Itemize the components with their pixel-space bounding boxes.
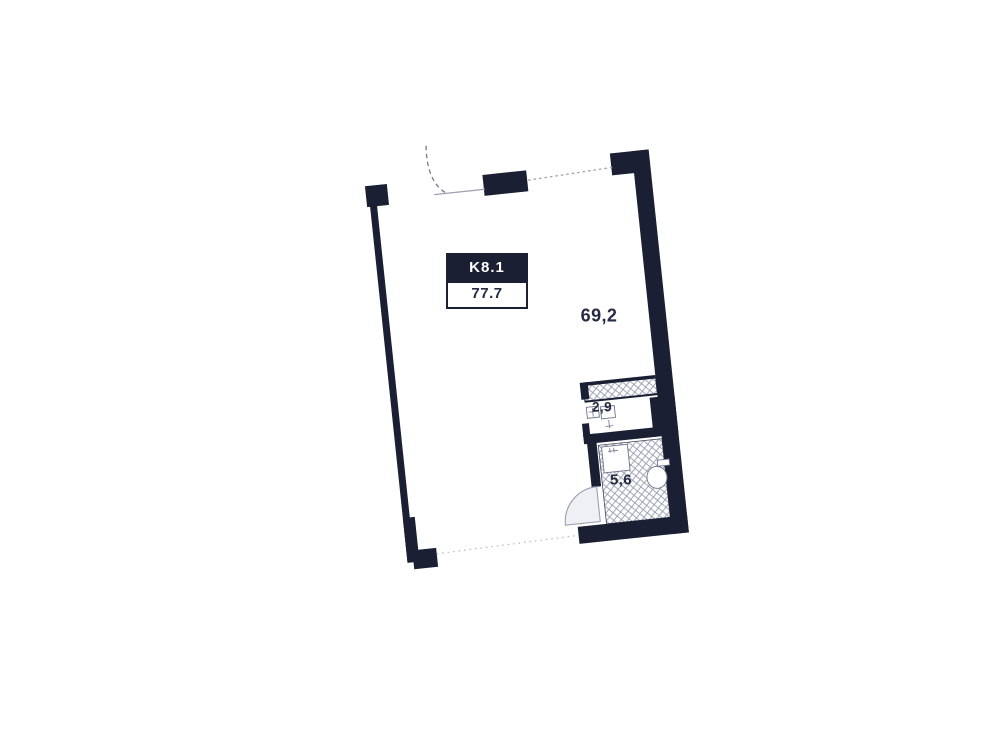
floor-plan-rotated-group [361,123,689,571]
room-area-label-bathroom: 5,6 [610,472,632,489]
shower-tray [601,444,630,473]
wall-window-pier-top [482,170,528,195]
washbasin-tap [657,459,670,466]
unit-number: K8.1 [446,253,528,283]
bottom-opening-line [436,535,578,553]
wall-corner-top-left [365,184,389,207]
unit-label-box: K8.1 77.7 [446,253,528,309]
floor-plan-stage: K8.1 77.7 69,2 2,9 5,6 [0,0,1000,750]
wall-corner-bottom-left-foot [412,548,438,569]
wall-left [368,187,414,562]
room-area-label-living: 69,2 [581,306,618,327]
unit-total-area: 77.7 [446,283,528,309]
window-line-right [528,167,613,180]
floor-plan-svg [0,0,1000,750]
bathroom-door-swing [562,487,600,525]
entry-door-arc [426,144,445,194]
room-area-label-hall: 2,9 [592,400,612,415]
